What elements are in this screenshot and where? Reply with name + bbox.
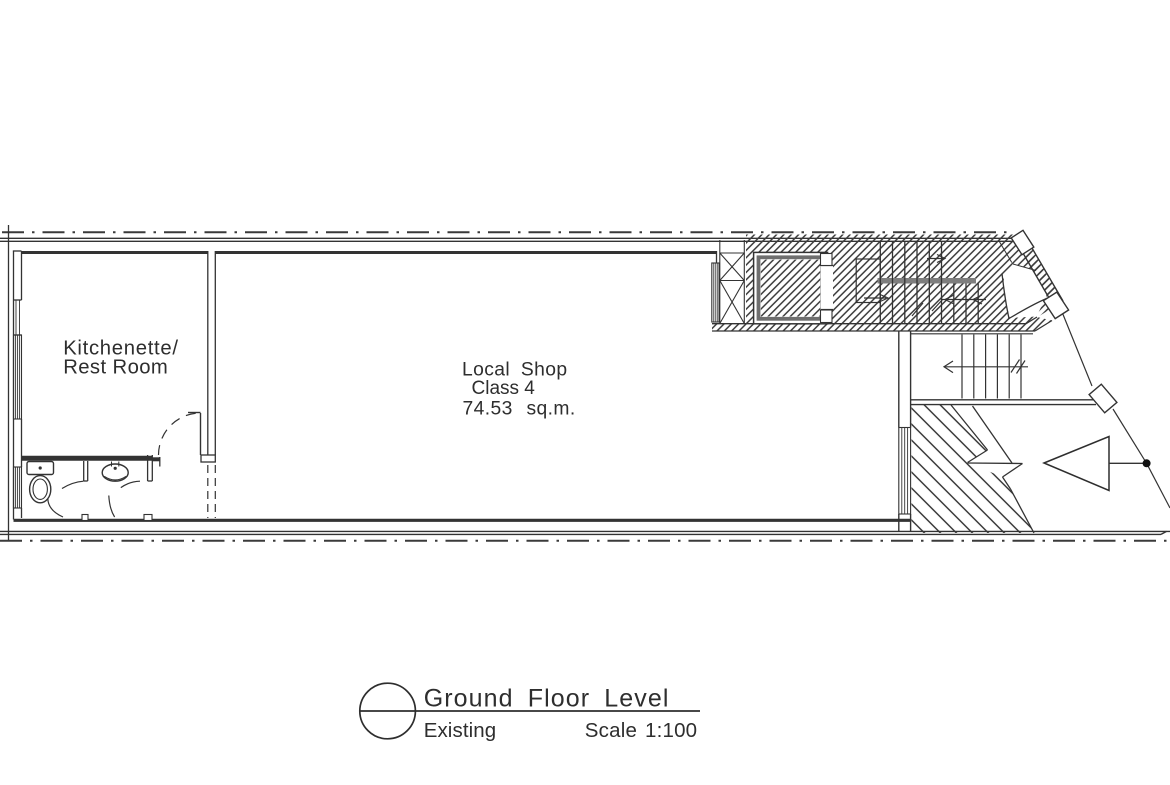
svg-text:74.53 sq.m.: 74.53 sq.m. <box>463 399 576 420</box>
svg-text:Ground Floor Level: Ground Floor Level <box>424 685 670 713</box>
svg-text:Scale 1:100: Scale 1:100 <box>585 719 697 742</box>
svg-text:Class 4: Class 4 <box>472 378 536 399</box>
svg-text:Rest Room: Rest Room <box>63 357 168 379</box>
svg-text:Existing: Existing <box>424 719 497 742</box>
